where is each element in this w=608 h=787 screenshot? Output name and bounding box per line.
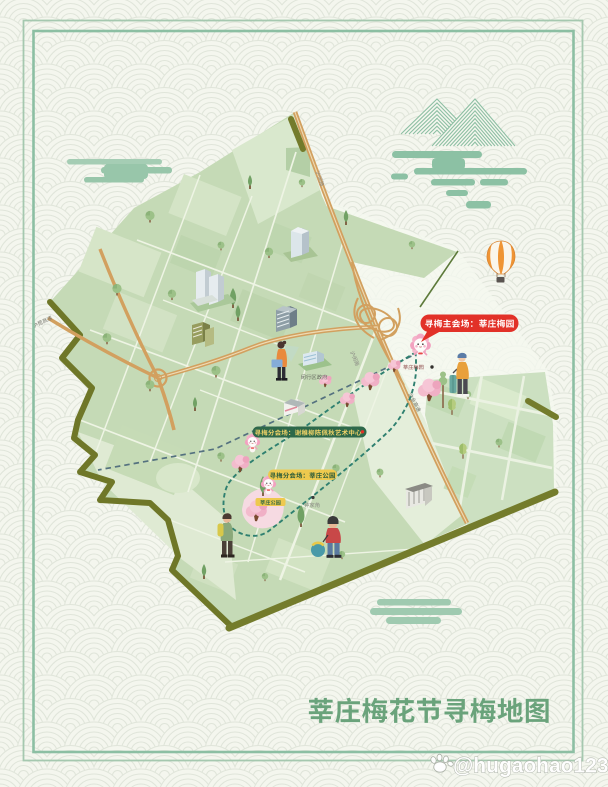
svg-text:@hugaohao123: @hugaohao123 <box>453 755 608 778</box>
